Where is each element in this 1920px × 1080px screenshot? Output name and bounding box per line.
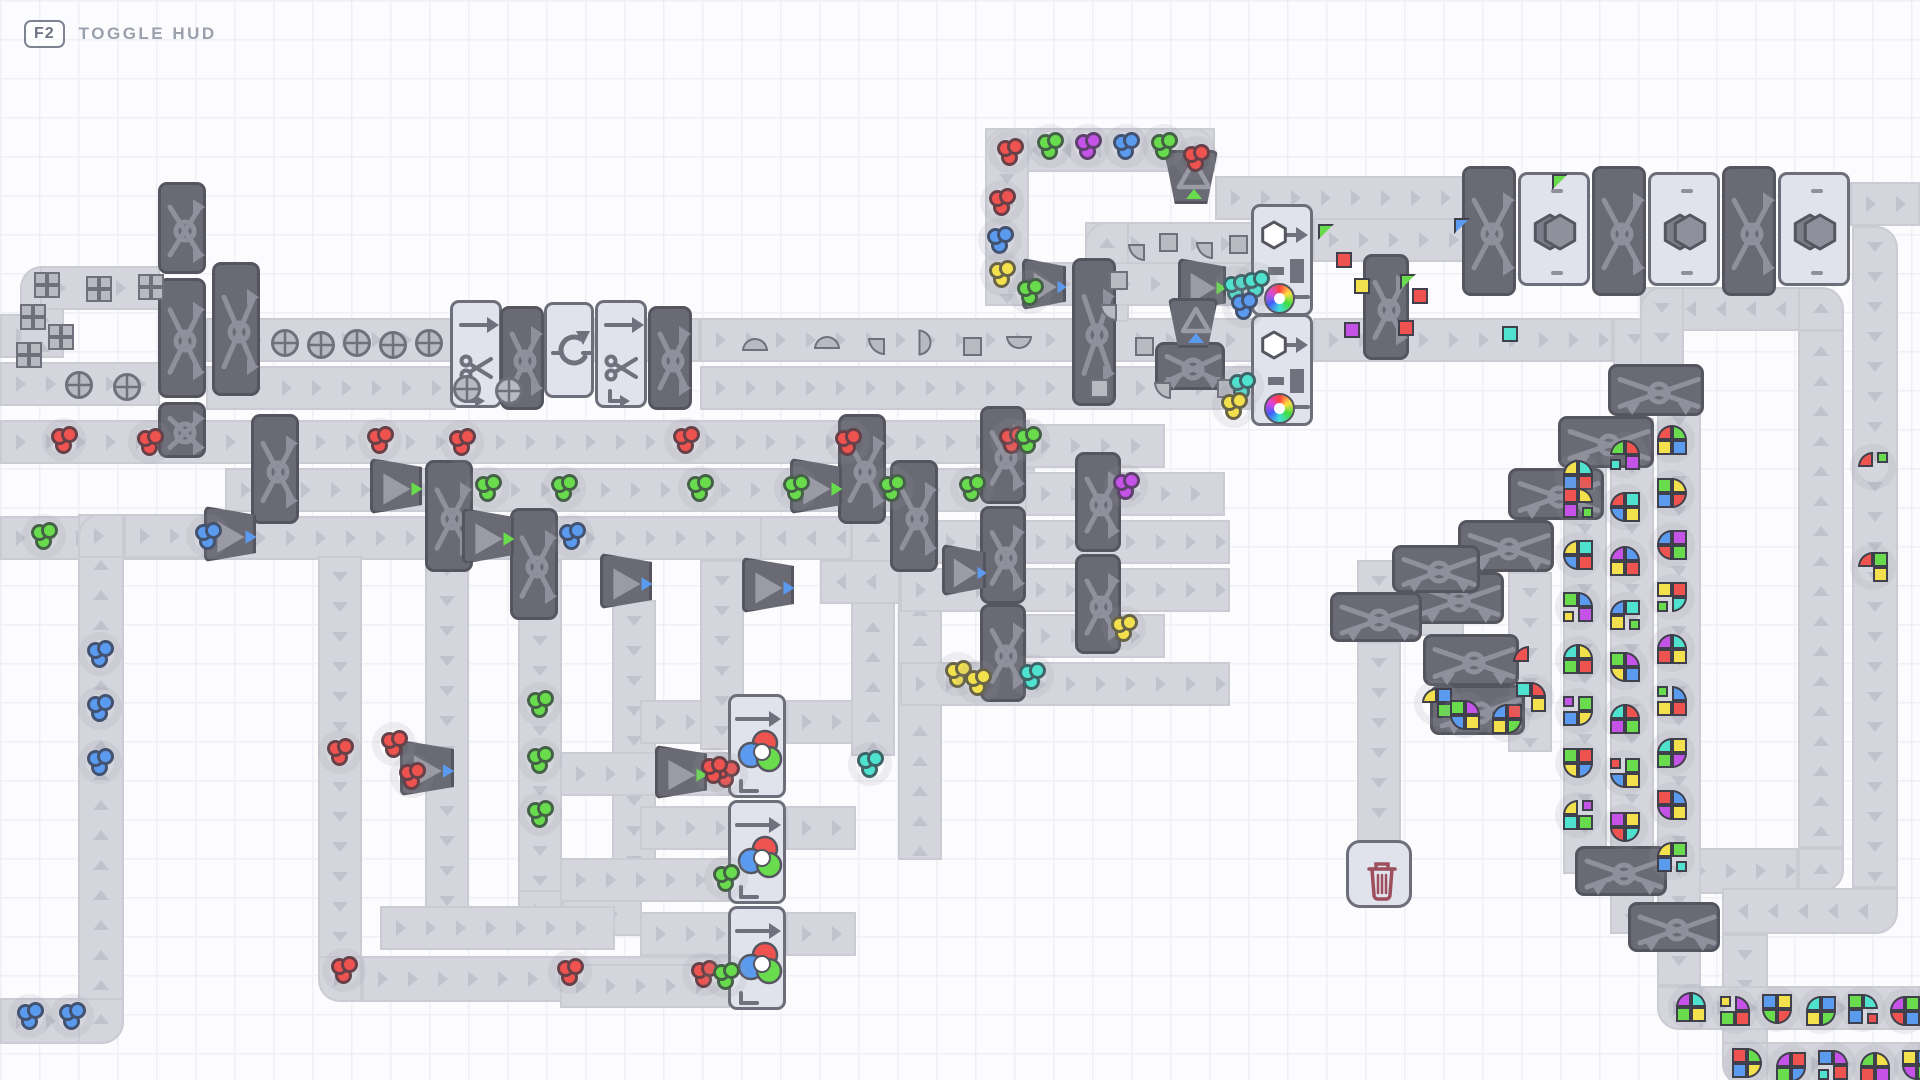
chevron-icon: [332, 812, 348, 822]
berry-circle: [377, 426, 394, 443]
chevron-icon: [626, 646, 642, 656]
shape-quadrant: [1657, 440, 1672, 455]
chevron-icon: [439, 596, 455, 606]
shape-quadrant: [1657, 601, 1668, 612]
shape-quadrant: [1625, 561, 1640, 576]
berry-item: [986, 226, 1014, 254]
berry-circle: [69, 1002, 86, 1019]
chevron-icon: [1036, 534, 1046, 550]
shape-quadrant: [1720, 996, 1731, 1007]
chevron-icon: [1599, 332, 1609, 348]
shape-item: [1720, 996, 1750, 1026]
chevron-icon: [626, 616, 642, 626]
chevron-icon: [332, 572, 348, 582]
shape-quadrant: [1422, 688, 1437, 703]
shape-quadrant: [16, 355, 29, 368]
balancer-building[interactable]: [1592, 166, 1646, 296]
chevron-icon: [661, 482, 671, 498]
chevron-icon: [714, 576, 730, 586]
shape-quadrant: [1625, 719, 1640, 734]
chevron-icon: [93, 920, 109, 930]
shape-quadrant: [1582, 507, 1593, 518]
berry-item: [856, 750, 884, 778]
conveyor-belt[interactable]: [820, 560, 900, 604]
shape-quadrant: [99, 289, 112, 302]
berry-circle: [537, 690, 554, 707]
chevron-icon: [946, 434, 956, 450]
chevron-icon: [576, 872, 586, 888]
chevron-icon: [93, 590, 109, 600]
chevron-icon: [1828, 903, 1838, 919]
chevron-icon: [1186, 676, 1196, 692]
chevron-icon: [865, 622, 881, 632]
chevron-icon: [1191, 486, 1201, 502]
chevron-icon: [1381, 190, 1391, 206]
shape-quarter: [1100, 304, 1117, 321]
chevron-icon: [332, 662, 348, 672]
berry-item: [330, 956, 358, 984]
shape-quadrant: [1867, 1013, 1878, 1024]
chevron-icon: [439, 626, 455, 636]
chevron-icon: [256, 530, 266, 546]
chevron-icon: [532, 726, 548, 736]
chevron-icon: [16, 434, 26, 450]
shape-half: [919, 330, 932, 356]
berry-circle: [793, 474, 810, 491]
chevron-icon: [332, 842, 348, 852]
chevron-icon: [93, 1014, 109, 1024]
chevron-icon: [372, 380, 382, 396]
balancer-building[interactable]: [510, 508, 558, 620]
balancer-building[interactable]: [1075, 554, 1121, 654]
chevron-icon: [832, 714, 842, 730]
filter-building[interactable]: [462, 508, 514, 564]
gray-shape-item: [34, 272, 64, 302]
chevron-icon: [46, 376, 56, 392]
chevron-icon: [406, 434, 416, 450]
gray-shape-item: [1148, 376, 1178, 406]
shape-quadrant: [1860, 1067, 1875, 1080]
shape-half: [742, 338, 768, 351]
berry-circle: [97, 748, 114, 765]
berry-item: [136, 428, 164, 456]
chevron-icon: [714, 636, 730, 646]
gray-shape-item: [270, 328, 300, 358]
chevron-icon: [1798, 903, 1808, 919]
shape-quadrant: [1412, 288, 1428, 304]
balancer-building[interactable]: [1722, 166, 1776, 296]
balancer-building[interactable]: [980, 506, 1026, 604]
conveyor-belt[interactable]: [786, 912, 856, 956]
balancer-building[interactable]: [1575, 846, 1667, 896]
shape-quadrant: [1563, 659, 1578, 674]
gray-shape-item: [342, 328, 372, 358]
balancer-building[interactable]: [158, 182, 206, 274]
berry-item: [380, 730, 408, 758]
chevron-icon: [626, 676, 642, 686]
berry-item: [1074, 132, 1102, 160]
chevron-icon: [912, 816, 928, 826]
conveyor-belt[interactable]: [380, 906, 615, 950]
balancer-building[interactable]: [158, 402, 206, 458]
chevron-icon: [439, 656, 455, 666]
balancer-building[interactable]: [251, 414, 299, 524]
chevron-icon: [746, 380, 756, 396]
berry-item: [58, 1002, 86, 1030]
chevron-icon: [556, 434, 566, 450]
shape-quadrant: [1492, 719, 1507, 734]
shape-quadrant: [1578, 659, 1593, 674]
chevron-icon: [332, 602, 348, 612]
chevron-icon: [93, 800, 109, 810]
shape-quadrant: [1318, 224, 1334, 240]
painted-piece-item: [1398, 320, 1415, 337]
shape-quadrant: [1902, 1050, 1917, 1065]
gray-shape-item: [862, 332, 892, 362]
shape-quadrant: [1732, 1063, 1747, 1078]
chevron-icon: [736, 530, 746, 546]
balancer-building[interactable]: [1363, 254, 1409, 360]
chevron-icon: [776, 380, 786, 396]
chevron-icon: [1216, 534, 1226, 550]
gray-shape-item: [1122, 238, 1152, 268]
chevron-icon: [1813, 766, 1829, 776]
conveyor-belt[interactable]: [1798, 330, 1844, 848]
shape-quadrant: [1818, 1050, 1833, 1065]
berry-circle: [1231, 392, 1248, 409]
game-canvas[interactable]: F2 TOGGLE HUD: [0, 0, 1920, 1080]
chevron-icon: [1813, 346, 1829, 356]
conveyor-belt[interactable]: [760, 516, 852, 560]
conveyor-belt[interactable]: [1357, 642, 1401, 844]
shape-quadrant: [48, 337, 61, 350]
chevron-icon: [636, 978, 646, 994]
balancer-building[interactable]: [980, 406, 1026, 504]
berry-circle: [41, 522, 58, 539]
berry-circle: [537, 746, 554, 763]
chevron-icon: [666, 872, 676, 888]
berry-circle: [459, 428, 476, 445]
conveyor-belt[interactable]: [124, 514, 204, 558]
berry-circle: [569, 522, 586, 539]
shape-item: [1563, 696, 1593, 726]
chevron-icon: [1813, 526, 1829, 536]
shape-quadrant: [20, 317, 33, 330]
chevron-icon: [93, 860, 109, 870]
chevron-icon: [706, 434, 716, 450]
chevron-icon: [106, 434, 116, 450]
shape-item: [1563, 644, 1593, 674]
shape-quadrant: [1657, 753, 1672, 768]
balancer-building[interactable]: [1330, 592, 1422, 642]
chevron-icon: [716, 926, 726, 942]
shape-item: [1848, 994, 1878, 1024]
shape-quadrant: [1657, 790, 1672, 805]
shape-quadrant: [1578, 607, 1593, 622]
trash-building[interactable]: [1346, 840, 1412, 908]
chevron-icon: [1867, 362, 1883, 372]
chevron-icon: [1867, 662, 1883, 672]
berry-circle: [999, 260, 1016, 277]
chevron-icon: [1522, 618, 1538, 628]
chevron-icon: [666, 978, 676, 994]
berry-item: [700, 756, 728, 784]
shape-item: [1762, 994, 1792, 1024]
gray-shape-item: [86, 276, 116, 306]
chevron-icon: [282, 380, 292, 396]
chevron-icon: [836, 574, 846, 590]
shape-quadrant: [1344, 322, 1360, 338]
berry-item: [1220, 392, 1248, 420]
gray-shape-item: [112, 372, 142, 402]
shape-quadrant: [29, 342, 42, 355]
chevron-icon: [1654, 303, 1670, 313]
chevron-icon: [1813, 303, 1829, 313]
chevron-icon: [865, 682, 881, 692]
berry-item: [1230, 292, 1258, 320]
berry-item: [16, 1002, 44, 1030]
filter-building[interactable]: [600, 553, 652, 609]
chevron-icon: [516, 920, 526, 936]
chevron-icon: [576, 920, 586, 936]
conveyor-belt[interactable]: [78, 514, 124, 558]
filter-building[interactable]: [742, 557, 794, 613]
conveyor-belt[interactable]: [425, 520, 469, 910]
conveyor-belt[interactable]: [786, 806, 856, 850]
berry-circle: [1025, 426, 1042, 443]
berry-circle: [1241, 292, 1258, 309]
chevron-icon: [16, 530, 26, 546]
painter-building[interactable]: [1251, 314, 1313, 426]
chevron-icon: [1867, 602, 1883, 612]
shape-quadrant: [1672, 842, 1687, 857]
berry-item: [526, 800, 554, 828]
chevron-icon: [714, 666, 730, 676]
chevron-icon: [686, 820, 696, 836]
chevron-icon: [1066, 676, 1076, 692]
berry-circle: [27, 1002, 44, 1019]
berry-item: [526, 690, 554, 718]
conveyor-belt[interactable]: [786, 700, 856, 744]
chevron-icon: [94, 528, 104, 544]
conveyor-belt[interactable]: [1722, 888, 1898, 934]
chevron-icon: [1813, 826, 1829, 836]
chevron-icon: [1351, 190, 1361, 206]
gray-shape-item: [48, 324, 78, 354]
chevron-icon: [1156, 676, 1166, 692]
chevron-icon: [93, 620, 109, 630]
chevron-icon: [436, 434, 446, 450]
shape-item: [1563, 488, 1593, 518]
shape-quarter: [1196, 242, 1213, 259]
berry-item: [326, 738, 354, 766]
berry-circle: [1121, 614, 1138, 631]
chevron-icon: [1746, 301, 1756, 317]
shape-item: [1657, 634, 1687, 664]
shape-item: [1610, 440, 1640, 470]
shape-quadrant: [151, 274, 164, 287]
shape-quadrant: [1578, 748, 1593, 763]
balancer-building[interactable]: [1392, 545, 1480, 593]
conveyor-belt[interactable]: [640, 806, 730, 850]
balancer-building[interactable]: [1075, 452, 1121, 552]
berry-item: [448, 428, 476, 456]
chevron-icon: [376, 530, 386, 546]
chevron-icon: [586, 434, 596, 450]
chevron-icon: [1671, 716, 1687, 726]
chevron-icon: [796, 434, 806, 450]
berry-item: [1112, 132, 1140, 160]
chevron-icon: [1671, 956, 1687, 966]
painted-piece-item: [1513, 646, 1530, 663]
filter-building[interactable]: [370, 458, 422, 514]
balancer-building[interactable]: [212, 262, 260, 396]
shape-square: [1229, 235, 1248, 254]
chevron-icon: [1867, 692, 1883, 702]
shape-quadrant: [1848, 994, 1863, 1009]
conveyor-belt[interactable]: [1640, 287, 1684, 367]
chevron-icon: [1441, 190, 1451, 206]
shape-quadrant: [1610, 812, 1625, 827]
chevron-icon: [1686, 301, 1696, 317]
chevron-icon: [1126, 582, 1136, 598]
conveyor-belt[interactable]: [640, 912, 730, 956]
chevron-icon: [241, 482, 251, 498]
shape-quadrant: [1905, 996, 1920, 1011]
shape-quadrant: [1582, 800, 1593, 811]
shape-quadrant: [1625, 758, 1640, 773]
balancer-building[interactable]: [648, 306, 692, 410]
berry-item: [526, 746, 554, 774]
balancer-building[interactable]: [1608, 364, 1704, 416]
chevron-icon: [93, 980, 109, 990]
shape-quadrant: [1672, 738, 1687, 753]
shape-item: [1516, 682, 1546, 712]
shape-quadrant: [1336, 252, 1352, 268]
chevron-icon: [532, 636, 548, 646]
berry-circle: [1161, 132, 1178, 149]
filter-building[interactable]: [942, 544, 986, 596]
rotator-building[interactable]: [544, 302, 594, 398]
chevron-icon: [1867, 512, 1883, 522]
chevron-icon: [1126, 534, 1136, 550]
painter-building[interactable]: [1251, 204, 1313, 316]
chevron-icon: [346, 530, 356, 546]
gray-shape-item: [1004, 328, 1034, 358]
shape-quadrant: [1777, 994, 1792, 1009]
chevron-icon: [865, 532, 881, 542]
chevron-icon: [456, 920, 466, 936]
berry-circle: [845, 428, 862, 445]
chevron-icon: [866, 380, 876, 396]
chevron-icon: [526, 434, 536, 450]
chevron-icon: [378, 971, 388, 987]
stacker-building[interactable]: [1778, 172, 1850, 286]
chevron-icon: [226, 434, 236, 450]
shape-item: [1890, 996, 1920, 1026]
chevron-icon: [646, 434, 656, 450]
chevron-icon: [1186, 534, 1196, 550]
berry-item: [50, 426, 78, 454]
berry-circle: [337, 738, 354, 755]
chevron-icon: [1866, 196, 1876, 212]
chevron-icon: [1539, 332, 1549, 348]
chevron-icon: [926, 380, 936, 396]
color-mixer-building[interactable]: [728, 906, 786, 1010]
chevron-icon: [806, 530, 816, 546]
stacker-building[interactable]: [1648, 172, 1720, 286]
berry-circle: [975, 668, 992, 685]
chevron-icon: [1867, 722, 1883, 732]
color-mixer-building[interactable]: [728, 800, 786, 904]
shape-quadrant: [1762, 994, 1777, 1009]
chevron-icon: [1813, 864, 1829, 874]
chevron-icon: [1837, 1000, 1847, 1016]
conveyor-belt[interactable]: [560, 858, 730, 902]
painted-piece-item: [1354, 278, 1371, 295]
balancer-building[interactable]: [1628, 902, 1720, 952]
chevron-icon: [999, 294, 1015, 304]
berry-circle: [537, 800, 554, 817]
chevron-icon: [616, 530, 626, 546]
cutter-building[interactable]: [595, 300, 647, 408]
shape-item: [1563, 460, 1593, 490]
shape-quadrant: [1676, 861, 1687, 872]
chevron-icon: [636, 872, 646, 888]
shape-half: [814, 336, 840, 349]
chevron-icon: [1099, 238, 1115, 248]
conveyor-belt[interactable]: [1798, 848, 1844, 892]
berry-circle: [1085, 132, 1102, 149]
chevron-icon: [706, 530, 716, 546]
conveyor-belt[interactable]: [851, 516, 895, 756]
berry-circle: [1047, 132, 1064, 149]
shape-item: [1563, 800, 1593, 830]
chevron-icon: [1156, 534, 1166, 550]
chevron-icon: [1867, 482, 1883, 492]
chevron-icon: [586, 530, 596, 546]
shape-quadrant: [1676, 1007, 1691, 1022]
shape-square: [963, 337, 982, 356]
chevron-icon: [1867, 422, 1883, 432]
chevron-icon: [686, 926, 696, 942]
chevron-icon: [1096, 676, 1106, 692]
berry-circle: [147, 428, 164, 445]
shape-item: [1610, 600, 1640, 630]
berry-item: [1018, 662, 1046, 690]
chevron-icon: [776, 530, 786, 546]
shape-item: [1450, 700, 1480, 730]
chevron-icon: [1813, 496, 1829, 506]
painted-piece-item: [1318, 224, 1335, 241]
conveyor-belt[interactable]: [1850, 182, 1920, 226]
chevron-icon: [1737, 950, 1753, 960]
shape-quadrant: [1672, 440, 1687, 455]
conveyor-belt[interactable]: [1798, 287, 1844, 331]
chevron-icon: [956, 380, 966, 396]
chevron-icon: [1216, 676, 1226, 692]
gray-shape-item: [1085, 374, 1115, 404]
chevron-icon: [439, 836, 455, 846]
chevron-icon: [1813, 466, 1829, 476]
chevron-icon: [836, 380, 846, 396]
chevron-icon: [1813, 736, 1829, 746]
chevron-icon: [865, 652, 881, 662]
chevron-icon: [528, 971, 538, 987]
chevron-icon: [468, 971, 478, 987]
balancer-building[interactable]: [1423, 634, 1519, 686]
berry-item: [996, 138, 1024, 166]
